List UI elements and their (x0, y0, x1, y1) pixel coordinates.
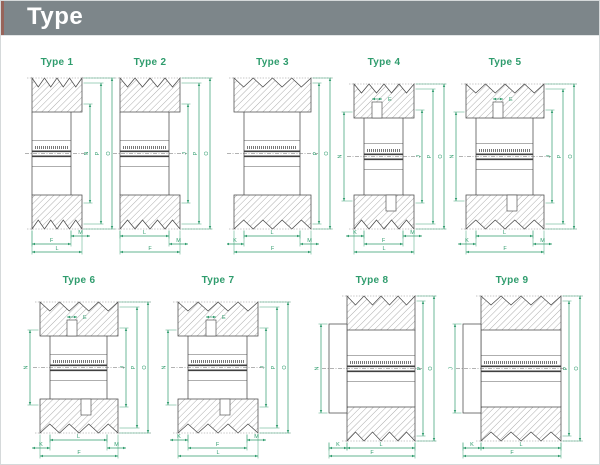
dimension-label: N (24, 365, 30, 369)
diagram-type-2: Type 2JPOLMF (113, 55, 219, 261)
dimension-label: F (503, 246, 507, 252)
pulley-drawing: JPONEKMFL (337, 71, 453, 261)
dimension-label: K (233, 238, 237, 244)
dimension-label: N (338, 154, 344, 158)
dimension-label: L (77, 434, 80, 440)
header-accent-strip (1, 1, 4, 35)
diagram-label: Type 1 (25, 55, 121, 71)
dimension-label: M (78, 230, 83, 236)
dimension-label: M (540, 238, 545, 244)
dimension-label: O (282, 365, 288, 370)
dimension-label: O (438, 154, 444, 159)
header-bar: Type (1, 1, 599, 35)
diagram-label: Type 5 (449, 55, 583, 71)
diagram-label: Type 7 (161, 273, 297, 289)
dimension-label: F (510, 450, 514, 456)
dimension-label: K (353, 230, 357, 236)
dimension-label: K (465, 238, 469, 244)
dimension-label: F (382, 238, 386, 244)
page-title: Type (27, 3, 83, 31)
dimension-label: N (162, 365, 168, 369)
dimension-label: K (177, 434, 181, 440)
dimension-label: E (222, 315, 226, 321)
pulley-drawing: NPOMFL (25, 71, 121, 261)
dimension-label: L (143, 230, 146, 236)
dimension-label: L (270, 230, 273, 236)
dimension-label: J (416, 155, 422, 158)
diagram-type-6: Type 6JPONEKLMF (23, 273, 157, 465)
dimension-label: P (427, 154, 433, 158)
dimension-label: F (50, 238, 54, 244)
diagram-type-3: Type 3POKLMF (227, 55, 339, 261)
diagram-type-5: Type 5JPONEKLMF (449, 55, 583, 261)
dimension-label: P (131, 365, 137, 369)
dimension-label: M (114, 442, 119, 448)
dimension-label: F (216, 442, 220, 448)
diagram-label: Type 8 (313, 273, 443, 289)
pulley-drawing: POKLMF (227, 71, 339, 261)
pulley-drawing: JPONEKLMF (23, 289, 157, 465)
dimension-label: J (260, 366, 266, 369)
dimension-label: M (176, 238, 181, 244)
dimension-label: P (557, 154, 563, 158)
dimension-label: J (120, 366, 126, 369)
dimension-label: M (254, 434, 259, 440)
dimension-label: L (519, 442, 522, 448)
dimension-label: P (417, 366, 423, 370)
dimension-label: L (55, 246, 58, 252)
dimension-label: O (428, 366, 434, 371)
dimension-label: F (148, 246, 152, 252)
diagram-grid: Type 1NPOMFLType 2JPOLMFType 3POKLMFType… (1, 35, 599, 464)
dimension-label: L (379, 442, 382, 448)
dimension-label: M (307, 238, 312, 244)
dimension-label: O (204, 151, 210, 156)
diagram-type-8: Type 8PONKLF (313, 273, 443, 465)
dimension-label: M (410, 230, 415, 236)
diagram-type-9: Type 9POJKLF (447, 273, 589, 465)
diagram-type-4: Type 4JPONEKMFL (337, 55, 453, 261)
dimension-label: F (271, 246, 275, 252)
diagram-label: Type 6 (23, 273, 157, 289)
diagram-label: Type 4 (337, 55, 453, 71)
dimension-label: K (470, 442, 474, 448)
dimension-label: K (336, 442, 340, 448)
dimension-label: O (574, 366, 580, 371)
pulley-drawing: JPOLMF (113, 71, 219, 261)
dimension-label: P (193, 151, 199, 155)
diagram-type-1: Type 1NPOMFL (25, 55, 121, 261)
diagram-label: Type 2 (113, 55, 219, 71)
dimension-label: O (106, 151, 112, 156)
diagram-type-7: Type 7JPONEKFML (161, 273, 297, 465)
dimension-label: N (450, 154, 456, 158)
pulley-drawing: JPONEKFML (161, 289, 297, 465)
dimension-label: F (370, 450, 374, 456)
diagram-label: Type 3 (227, 55, 339, 71)
dimension-label: J (182, 152, 188, 155)
dimension-label: P (313, 151, 319, 155)
dimension-label: L (382, 246, 385, 252)
dimension-label: O (568, 154, 574, 159)
dimension-label: E (388, 97, 392, 103)
diagram-label: Type 9 (447, 273, 589, 289)
dimension-label: O (142, 365, 148, 370)
dimension-label: J (449, 367, 455, 370)
dimension-label: N (84, 151, 90, 155)
dimension-label: E (509, 97, 513, 103)
dimension-label: K (39, 442, 43, 448)
dimension-label: L (216, 450, 219, 456)
page: Type Type 1NPOMFLType 2JPOLMFType 3POKLM… (0, 0, 600, 465)
dimension-label: P (95, 151, 101, 155)
pulley-drawing: PONKLF (313, 289, 443, 465)
dimension-label: N (315, 366, 321, 370)
dimension-label: F (77, 450, 81, 456)
dimension-label: O (324, 151, 330, 156)
dimension-label: P (271, 365, 277, 369)
pulley-drawing: POJKLF (447, 289, 589, 465)
dimension-label: J (546, 155, 552, 158)
dimension-label: E (83, 315, 87, 321)
dimension-label: P (563, 366, 569, 370)
dimension-label: L (503, 230, 506, 236)
pulley-drawing: JPONEKLMF (449, 71, 583, 261)
